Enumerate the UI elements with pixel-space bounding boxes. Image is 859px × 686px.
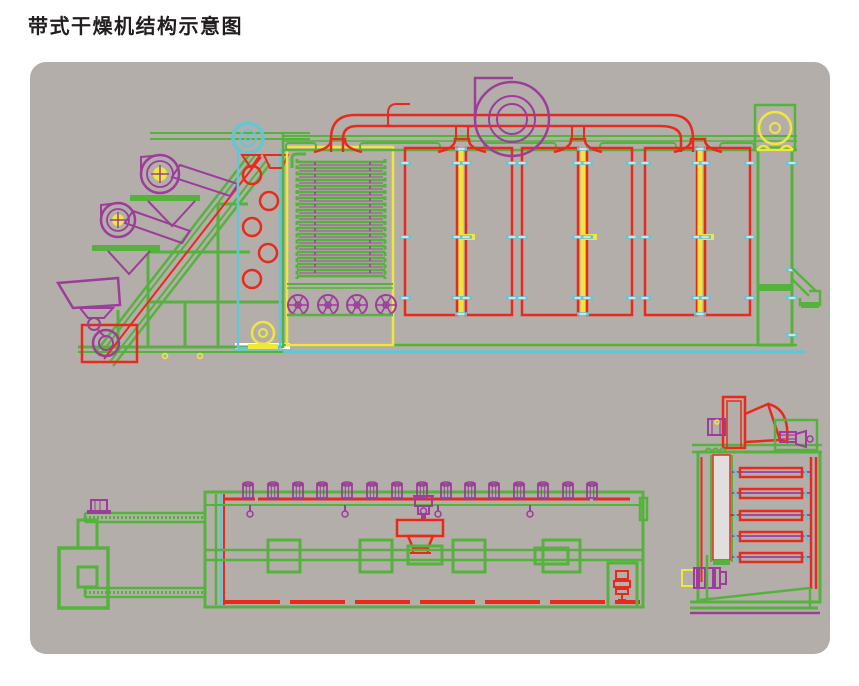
page-title: 带式干燥机结构示意图 <box>28 10 243 39</box>
base-frame-end <box>690 555 820 613</box>
page: { "page": { "title": "带式干燥机结构示意图" }, "pa… <box>0 0 859 686</box>
fin-stack <box>297 162 385 276</box>
schematic-drawing <box>30 62 830 654</box>
end-view <box>682 397 822 613</box>
conveyor-blower-lower <box>92 203 190 274</box>
end-column <box>758 148 798 345</box>
door-struts <box>455 149 714 314</box>
side-elevation-view <box>58 78 820 366</box>
feed-hopper <box>58 278 120 337</box>
plan-view <box>59 482 647 608</box>
chute-motor <box>248 322 278 349</box>
feed-box-plan <box>59 520 108 608</box>
diagram-panel <box>30 62 830 654</box>
belt-bar <box>730 511 810 520</box>
hanger-pins <box>247 505 533 517</box>
belt-bar <box>732 532 810 541</box>
center-rail <box>205 540 643 572</box>
drive-motor-end <box>682 568 726 588</box>
drive-motor-box <box>755 105 795 150</box>
belt-bar <box>732 489 810 498</box>
circulation-fans <box>287 295 396 315</box>
belt-bar <box>732 468 810 477</box>
exhaust-pipe <box>314 104 722 152</box>
feed-motor-plan <box>87 500 111 514</box>
exhaust-blower <box>475 78 549 156</box>
belt-stack <box>730 468 810 562</box>
belt-bar <box>732 553 810 562</box>
heater-column <box>711 455 732 565</box>
conveyor-rails-plan <box>85 513 205 597</box>
discharge-chute <box>792 268 820 308</box>
